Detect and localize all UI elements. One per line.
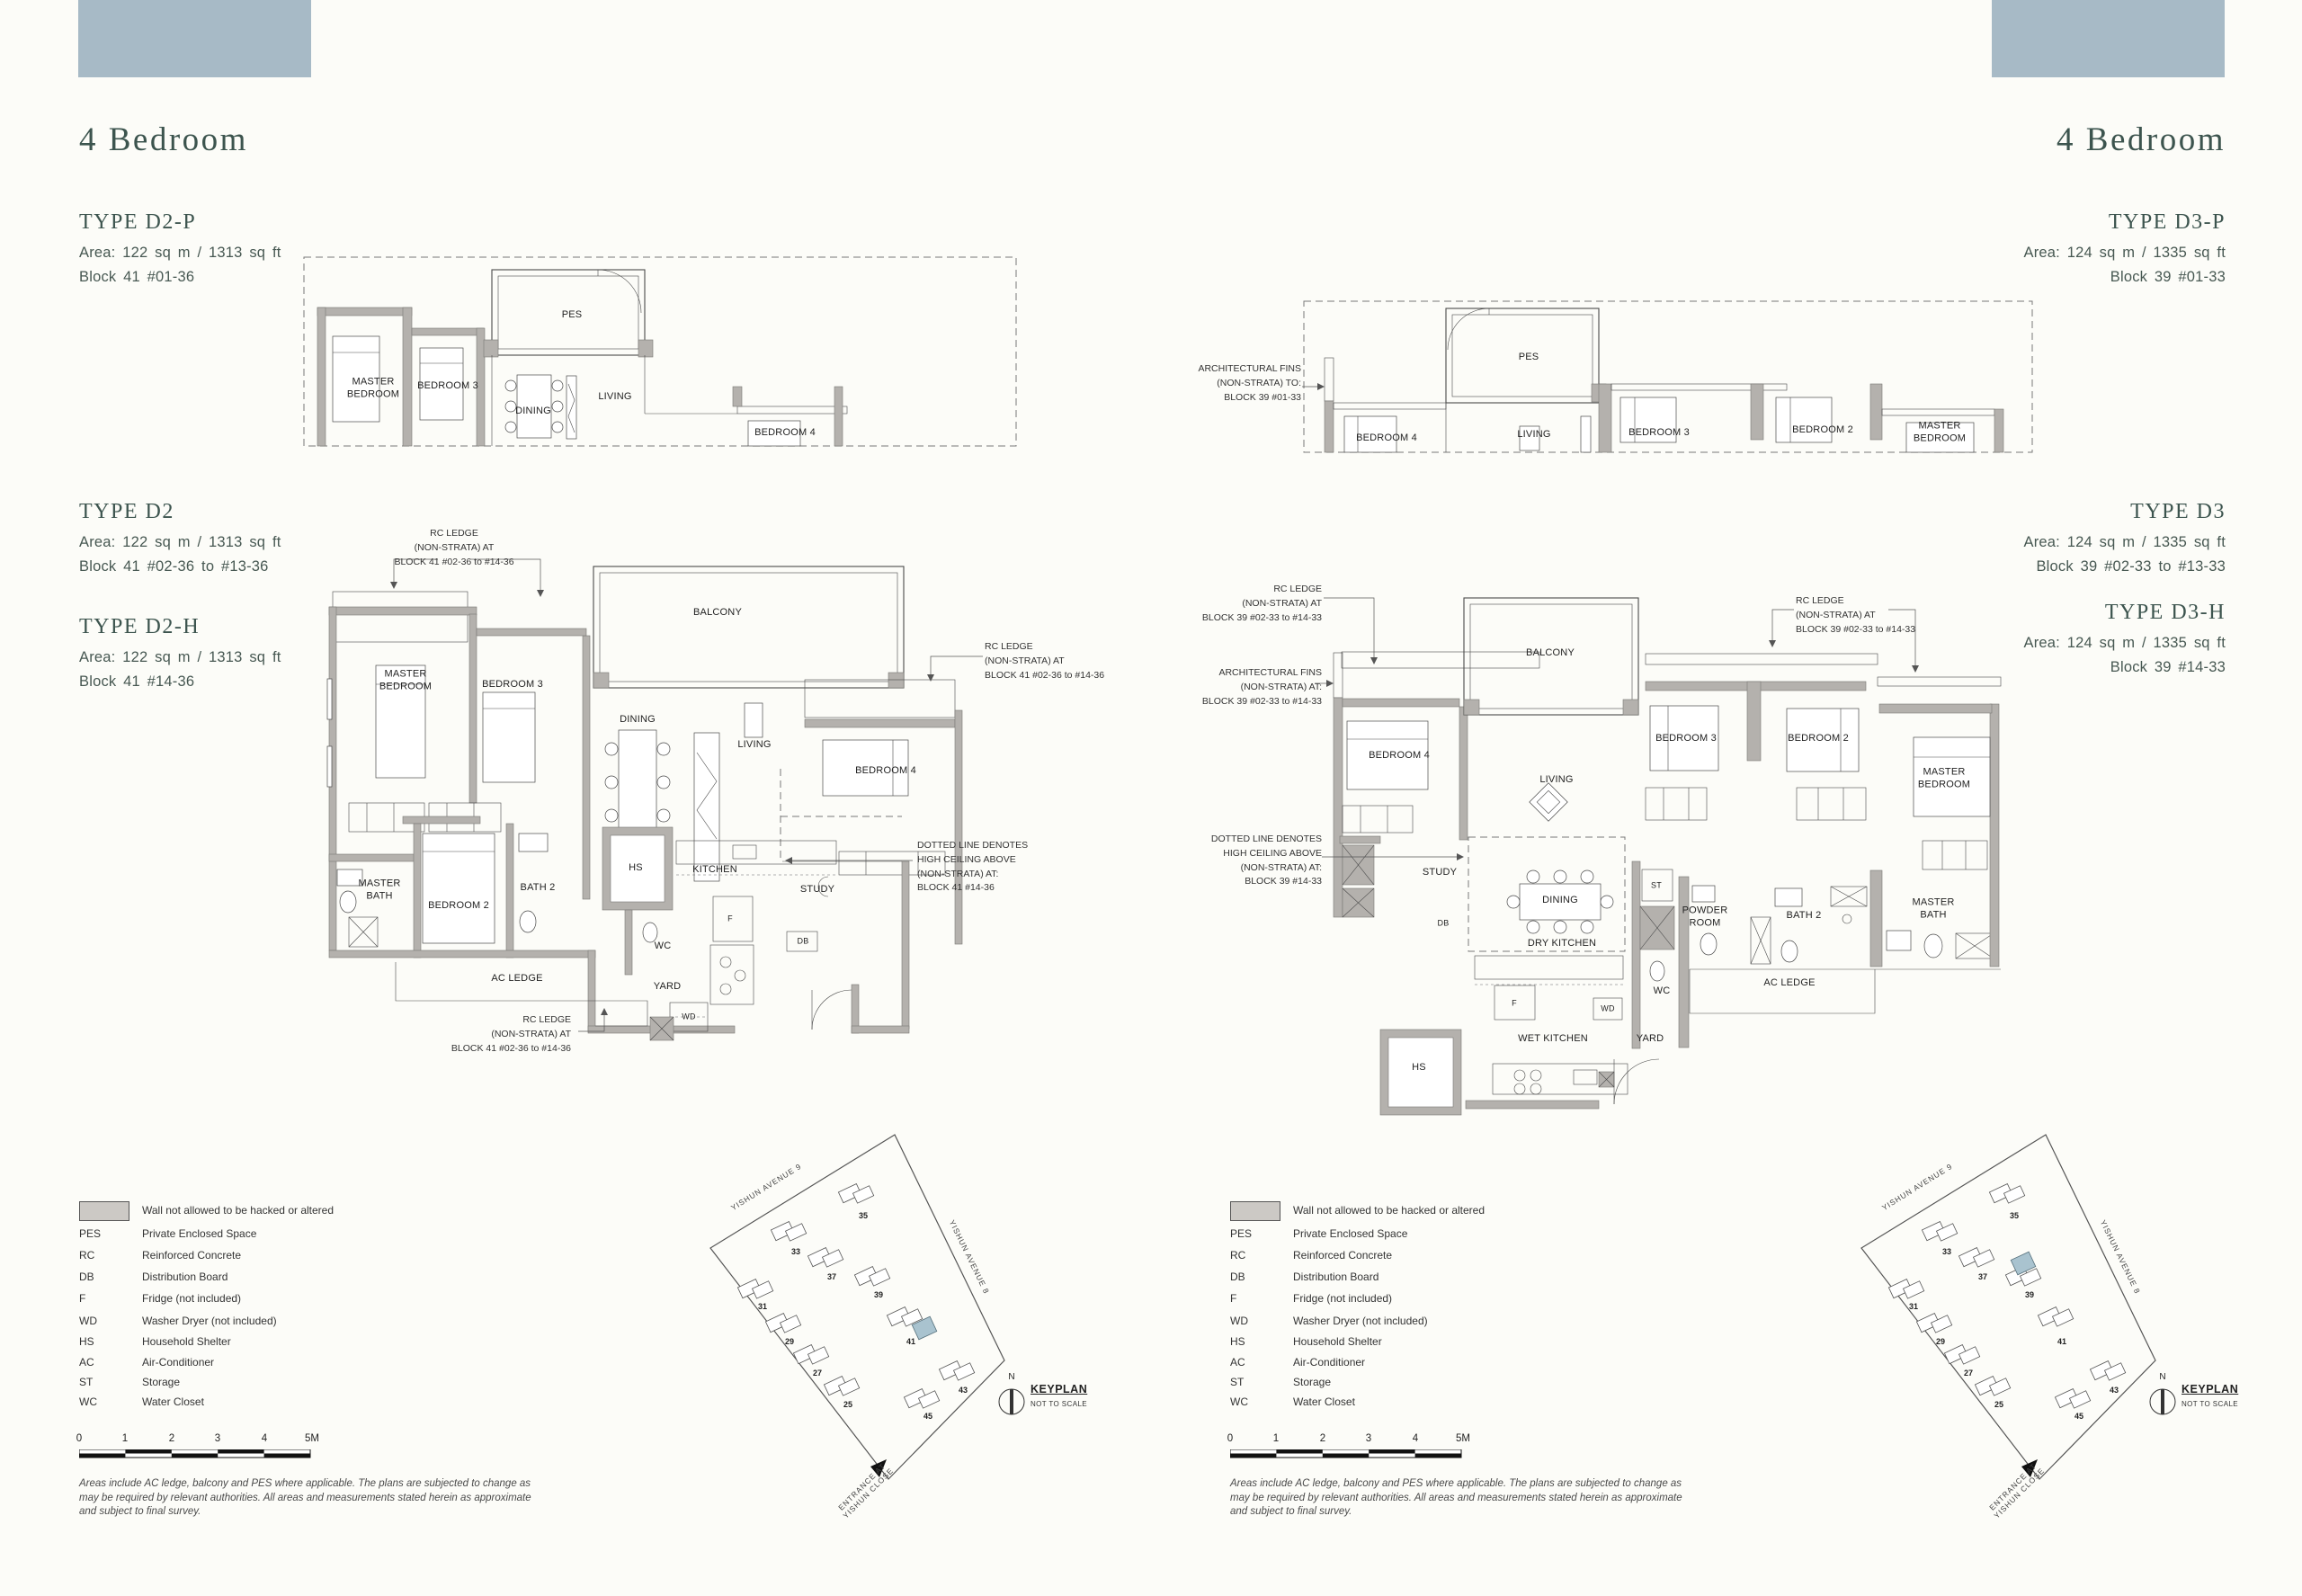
room-label-wc: WC	[1654, 985, 1671, 998]
keyplan-block: 39	[2025, 1290, 2034, 1299]
type-name: TYPE D3	[2023, 500, 2226, 524]
room-label-hs: HS	[1412, 1062, 1426, 1074]
disclaimer-text: Areas include AC ledge, balcony and PES …	[79, 1477, 531, 1520]
keyplan-block: 43	[2110, 1386, 2119, 1395]
room-label-master-bath: MASTER BATH	[358, 878, 400, 903]
type-area: Area: 122 sq m / 1313 sq ft	[79, 241, 281, 265]
room-label-bath2: BATH 2	[1787, 910, 1822, 923]
legend-wall-note: Wall not allowed to be hacked or altered	[1293, 1204, 1485, 1217]
room-label-bedroom4: BEDROOM 4	[1369, 750, 1430, 762]
keyplan-title: KEYPLAN	[2182, 1383, 2238, 1395]
keyplan-block: 41	[2057, 1337, 2066, 1346]
legend-abbr: RC	[1230, 1249, 1245, 1262]
keyplan-block: 31	[1909, 1302, 1918, 1311]
keyplan-title: KEYPLAN	[1031, 1383, 1087, 1395]
room-label-wet-kitchen: WET KITCHEN	[1518, 1033, 1588, 1046]
room-label-master-bedroom: MASTER BEDROOM	[1914, 420, 1966, 445]
north-label: N	[1008, 1372, 1014, 1382]
room-label-bedroom3: BEDROOM 3	[1628, 427, 1690, 440]
keyplan-block: 27	[1964, 1369, 1973, 1378]
keyplan-block: 31	[758, 1302, 767, 1311]
legend-def: Reinforced Concrete	[1293, 1249, 1392, 1262]
room-label-bedroom3: BEDROOM 3	[417, 380, 478, 393]
legend-abbr: WC	[1230, 1395, 1248, 1408]
room-label-dining: DINING	[515, 406, 551, 418]
scale-tick: 2	[169, 1433, 174, 1444]
room-label-fridge: F	[1512, 998, 1517, 1008]
room-label-bedroom4: BEDROOM 4	[855, 765, 916, 778]
legend-def: Water Closet	[1293, 1395, 1355, 1408]
legend-wall-swatch	[1230, 1201, 1280, 1221]
room-label-dining: DINING	[1542, 895, 1578, 907]
room-label-bedroom4: BEDROOM 4	[1356, 432, 1417, 445]
keyplan-block: 45	[2074, 1412, 2083, 1421]
scale-tick: 0	[1227, 1433, 1233, 1444]
annotation-dotted-line: DOTTED LINE DENOTES HIGH CEILING ABOVE (…	[1211, 833, 1322, 889]
legend-abbr: AC	[1230, 1356, 1245, 1369]
room-label-bedroom2: BEDROOM 2	[1788, 733, 1849, 745]
legend-abbr: DB	[79, 1271, 94, 1283]
type-name: TYPE D3-P	[2023, 210, 2226, 235]
legend-def: Water Closet	[142, 1395, 204, 1408]
keyplan-block: 37	[827, 1272, 836, 1281]
legend-abbr: DB	[1230, 1271, 1245, 1283]
scale-tick: 0	[76, 1433, 82, 1444]
page-title-right: 4 Bedroom	[2057, 120, 2226, 159]
legend-abbr: F	[79, 1292, 85, 1305]
type-block: Block 39 #14-33	[2023, 655, 2226, 680]
annotation-rc-ledge-top: RC LEDGE (NON-STRATA) AT BLOCK 41 #02-36…	[394, 527, 513, 569]
scale-tick: 5M	[1456, 1433, 1470, 1444]
scale-tick: 2	[1320, 1433, 1325, 1444]
room-label-bedroom3: BEDROOM 3	[482, 679, 543, 691]
room-label-master-bedroom: MASTER BEDROOM	[379, 668, 432, 693]
legend-def: Household Shelter	[1293, 1335, 1382, 1348]
keyplan-block: 29	[1936, 1337, 1945, 1346]
keyplan-block: 35	[859, 1211, 868, 1220]
room-label-dining: DINING	[620, 714, 656, 727]
legend-abbr: WD	[79, 1315, 97, 1327]
legend-def: Distribution Board	[1293, 1271, 1379, 1283]
disclaimer-text: Areas include AC ledge, balcony and PES …	[1230, 1477, 1682, 1520]
annotation-rc-ledge-right: RC LEDGE (NON-STRATA) AT BLOCK 41 #02-36…	[985, 640, 1104, 682]
legend-wall-note: Wall not allowed to be hacked or altered	[142, 1204, 334, 1217]
room-label-db: DB	[1438, 918, 1450, 928]
type-name: TYPE D2-P	[79, 210, 281, 235]
floorplan-d3-drawing	[1304, 566, 2050, 1205]
type-block: Block 39 #01-33	[2023, 265, 2226, 290]
type-area: Area: 124 sq m / 1335 sq ft	[2023, 241, 2226, 265]
scale-tick: 1	[1273, 1433, 1279, 1444]
legend-abbr: PES	[1230, 1227, 1252, 1240]
type-area: Area: 124 sq m / 1335 sq ft	[2023, 531, 2226, 555]
typeblock-d3: TYPE D3 Area: 124 sq m / 1335 sq ft Bloc…	[2023, 500, 2226, 579]
room-label-pes: PES	[562, 309, 583, 322]
type-area: Area: 124 sq m / 1335 sq ft	[2023, 631, 2226, 655]
legend-abbr: HS	[1230, 1335, 1245, 1348]
room-label-living: LIVING	[1539, 774, 1573, 787]
deco-rect-left	[78, 0, 311, 77]
keyplan-block: 41	[906, 1337, 915, 1346]
room-label-yard: YARD	[654, 981, 682, 994]
room-label-balcony: BALCONY	[693, 607, 742, 620]
scale-tick: 5M	[305, 1433, 319, 1444]
legend-abbr: HS	[79, 1335, 94, 1348]
type-block: Block 41 #01-36	[79, 265, 281, 290]
scale-tick: 1	[122, 1433, 128, 1444]
room-label-db: DB	[798, 936, 809, 946]
type-name: TYPE D3-H	[2023, 601, 2226, 625]
annotation-rc-ledge-top: RC LEDGE (NON-STRATA) AT BLOCK 39 #02-33…	[1796, 594, 1915, 637]
annotation-rc-ledge-bottom: RC LEDGE (NON-STRATA) AT BLOCK 41 #02-36…	[451, 1013, 571, 1056]
room-label-living: LIVING	[1517, 429, 1550, 441]
room-label-living: LIVING	[737, 739, 771, 752]
keyplan-block: 25	[843, 1400, 852, 1409]
keyplan-block: 25	[1994, 1400, 2003, 1409]
legend-def: Reinforced Concrete	[142, 1249, 241, 1262]
north-label: N	[2159, 1372, 2165, 1382]
room-label-fridge: F	[727, 914, 733, 923]
typeblock-d3h: TYPE D3-H Area: 124 sq m / 1335 sq ft Bl…	[2023, 601, 2226, 680]
room-label-dry-kitchen: DRY KITCHEN	[1528, 938, 1596, 950]
legend-def: Washer Dryer (not included)	[142, 1315, 277, 1327]
room-label-balcony: BALCONY	[1526, 647, 1575, 660]
scale-tick: 4	[1413, 1433, 1418, 1444]
legend-abbr: AC	[79, 1356, 94, 1369]
keyplan-block: 37	[1978, 1272, 1987, 1281]
keyplan-block: 45	[923, 1412, 932, 1421]
room-label-master-bath: MASTER BATH	[1912, 896, 1954, 922]
annotation-arch-fins: ARCHITECTURAL FINS (NON-STRATA) AT: BLOC…	[1202, 666, 1322, 709]
legend-def: Household Shelter	[142, 1335, 231, 1348]
legend-abbr: PES	[79, 1227, 101, 1240]
room-label-pes: PES	[1519, 352, 1539, 364]
legend-abbr: WD	[1230, 1315, 1248, 1327]
keyplan-block: 33	[791, 1247, 800, 1256]
label-ac-ledge: AC LEDGE	[491, 973, 542, 985]
page-title-left: 4 Bedroom	[79, 120, 248, 159]
floorplan-d2p-drawing	[301, 254, 1021, 453]
keyplan-block: 35	[2010, 1211, 2019, 1220]
keyplan-block: 39	[874, 1290, 883, 1299]
scale-bar	[79, 1449, 311, 1458]
legend-def: Storage	[142, 1376, 180, 1388]
room-label-st: ST	[1651, 880, 1662, 890]
room-label-wc: WC	[655, 941, 672, 953]
scale-tick: 3	[215, 1433, 220, 1444]
legend-abbr: F	[1230, 1292, 1236, 1305]
keyplan-block: 43	[959, 1386, 968, 1395]
legend-def: Storage	[1293, 1376, 1331, 1388]
legend-abbr: RC	[79, 1249, 94, 1262]
scale-tick: 4	[262, 1433, 267, 1444]
deco-rect-right	[1992, 0, 2225, 77]
room-label-study: STUDY	[1423, 867, 1457, 879]
type-block: Block 39 #02-33 to #13-33	[2023, 555, 2226, 579]
room-label-wd: WD	[1601, 1003, 1614, 1013]
floorplan-d2-drawing	[193, 517, 1030, 1101]
room-label-bedroom4: BEDROOM 4	[754, 427, 816, 440]
room-label-living: LIVING	[598, 391, 631, 404]
room-label-yard: YARD	[1637, 1033, 1664, 1046]
legend-def: Washer Dryer (not included)	[1293, 1315, 1428, 1327]
legend-def: Fridge (not included)	[1293, 1292, 1392, 1305]
legend-def: Private Enclosed Space	[142, 1227, 256, 1240]
keyplan-block: 29	[785, 1337, 794, 1346]
room-label-wd: WD	[682, 1012, 695, 1021]
typeblock-d2p: TYPE D2-P Area: 122 sq m / 1313 sq ft Bl…	[79, 210, 281, 290]
keyplan-block: 33	[1942, 1247, 1951, 1256]
room-label-study: STUDY	[800, 884, 834, 896]
keyplan-subtitle: NOT TO SCALE	[1031, 1400, 1087, 1408]
legend-def: Air-Conditioner	[1293, 1356, 1365, 1369]
legend-def: Distribution Board	[142, 1271, 228, 1283]
room-label-master-bedroom: MASTER BEDROOM	[347, 376, 399, 401]
legend-def: Private Enclosed Space	[1293, 1227, 1407, 1240]
annotation-rc-ledge-left: RC LEDGE (NON-STRATA) AT BLOCK 39 #02-33…	[1202, 583, 1322, 625]
legend-abbr: ST	[79, 1376, 93, 1388]
legend-def: Fridge (not included)	[142, 1292, 241, 1305]
keyplan-block: 27	[813, 1369, 822, 1378]
legend-abbr: WC	[79, 1395, 97, 1408]
annotation-dotted-line: DOTTED LINE DENOTES HIGH CEILING ABOVE (…	[917, 839, 1028, 896]
room-label-kitchen: KITCHEN	[692, 864, 737, 877]
legend-def: Air-Conditioner	[142, 1356, 214, 1369]
room-label-bedroom2: BEDROOM 2	[428, 900, 489, 913]
room-label-master-bedroom: MASTER BEDROOM	[1918, 766, 1970, 791]
label-ac-ledge: AC LEDGE	[1763, 977, 1815, 990]
scale-tick: 3	[1366, 1433, 1371, 1444]
room-label-bath2: BATH 2	[521, 882, 556, 895]
room-label-hs: HS	[629, 862, 643, 875]
keyplan-subtitle: NOT TO SCALE	[2182, 1400, 2238, 1408]
scale-bar	[1230, 1449, 1462, 1458]
room-label-powder-room: POWDER ROOM	[1682, 905, 1728, 930]
room-label-bedroom3: BEDROOM 3	[1655, 733, 1717, 745]
legend-abbr: ST	[1230, 1376, 1244, 1388]
typeblock-d3p: TYPE D3-P Area: 124 sq m / 1335 sq ft Bl…	[2023, 210, 2226, 290]
legend-wall-swatch	[79, 1201, 129, 1221]
room-label-bedroom2: BEDROOM 2	[1792, 424, 1853, 437]
annotation-arch-fins: ARCHITECTURAL FINS (NON-STRATA) TO: BLOC…	[1198, 362, 1301, 405]
